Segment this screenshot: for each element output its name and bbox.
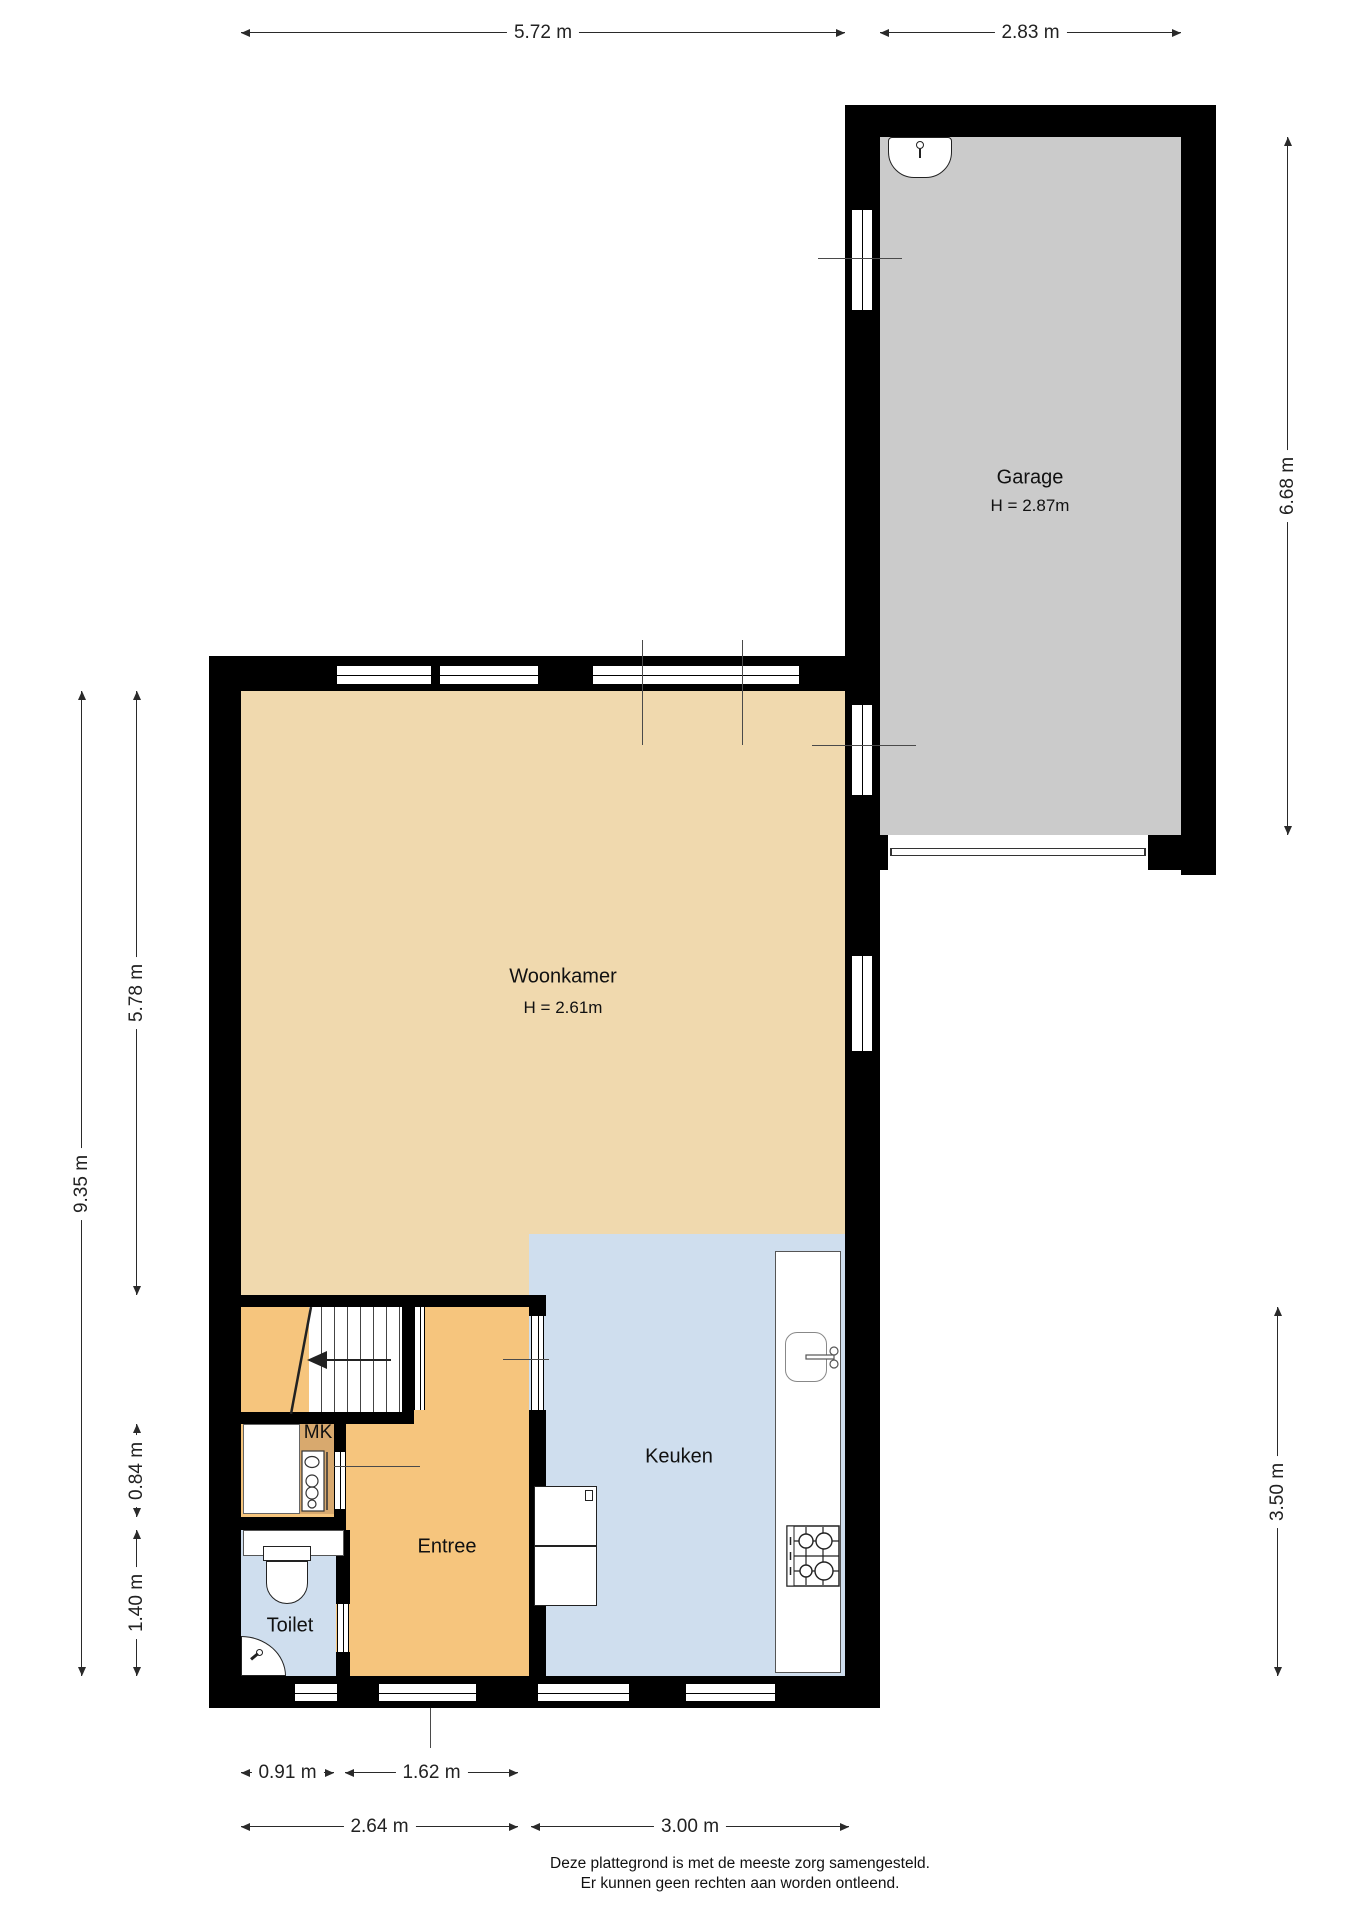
house-left-wall [209, 656, 241, 1708]
reference-line [812, 745, 916, 746]
room-label-toilet: Toilet [267, 1615, 314, 1638]
keuken-wall-top-stub [529, 1307, 546, 1316]
ceiling-height-woonkamer: H = 2.61m [524, 998, 603, 1018]
dim-right-keuken: 3.50 m [1277, 1307, 1278, 1676]
toilet-window [295, 1683, 337, 1702]
dim-left-house: 9.35 m [81, 691, 82, 1676]
stairs-direction-arrow-icon [283, 1303, 408, 1418]
keuken-bottom-window [686, 1683, 775, 1702]
room-label-entree: Entree [418, 1536, 477, 1559]
reference-line [742, 640, 743, 745]
garage-bottom-wall-right [1148, 835, 1216, 870]
closet [243, 1424, 300, 1514]
front-door [379, 1683, 476, 1702]
woonkamer-top-window-right [593, 665, 799, 685]
ceiling-height-garage: H = 2.87m [991, 496, 1070, 516]
garage-door [888, 835, 1148, 870]
disclaimer-line2: Er kunnen geen rechten aan worden ontlee… [550, 1874, 930, 1894]
reference-line [642, 640, 643, 745]
toilet-top-wall [241, 1517, 346, 1530]
garage-window [851, 210, 873, 310]
house-right-wall [845, 105, 880, 1708]
dim-bottom-entree: 1.62 m [345, 1772, 518, 1773]
toilet-door [337, 1604, 349, 1652]
woonkamer-garage-window [851, 705, 873, 795]
toilet-side-wall-lower [336, 1652, 350, 1676]
woonkamer-floor [241, 691, 845, 1295]
reference-line [818, 258, 902, 259]
garage-top-wall [845, 105, 1216, 137]
room-label-keuken: Keuken [645, 1446, 713, 1469]
dim-bottom-toilet: 0.91 m [241, 1772, 334, 1773]
dim-top-garage: 2.83 m [880, 32, 1181, 33]
reference-line [430, 1708, 431, 1748]
mk-door [334, 1452, 346, 1509]
meter-cabinet-icon [300, 1450, 334, 1512]
garage-right-wall [1181, 105, 1216, 875]
reference-line [334, 1466, 420, 1467]
room-label-garage: Garage [997, 467, 1064, 490]
reference-line [503, 1359, 549, 1360]
dim-left-woonkamer: 5.78 m [136, 691, 137, 1295]
disclaimer-line1: Deze plattegrond is met de meeste zorg s… [550, 1854, 930, 1874]
garage-sink-icon [888, 137, 952, 178]
mk-wall-top [334, 1424, 346, 1452]
disclaimer: Deze plattegrond is met de meeste zorg s… [550, 1854, 930, 1894]
dim-bottom-house-right: 3.00 m [531, 1826, 849, 1827]
entree-bottom-window [538, 1683, 629, 1702]
kitchen-counter [775, 1251, 841, 1673]
stove-icon [786, 1525, 840, 1587]
dim-right-garage: 6.68 m [1287, 137, 1288, 835]
woonkamer-side-window [851, 956, 873, 1051]
floor-plan: Garage H = 2.87m Woonkamer H = 2.61m Keu… [0, 0, 1358, 1920]
kitchen-island [534, 1486, 597, 1606]
toilet-icon [263, 1546, 311, 1561]
dim-left-meterkast: 0.84 m [136, 1424, 137, 1517]
stair-opening [414, 1307, 425, 1410]
keuken-door [531, 1316, 544, 1410]
toilet-bowl-icon [266, 1561, 308, 1604]
kitchen-faucet-icon [804, 1345, 840, 1371]
dim-top-house: 5.72 m [241, 32, 845, 33]
dim-left-toilet: 1.40 m [136, 1530, 137, 1676]
dim-bottom-house-left: 2.64 m [241, 1826, 518, 1827]
room-label-woonkamer: Woonkamer [509, 966, 616, 989]
window-divider [431, 664, 440, 684]
room-label-meterkast: MK [304, 1422, 333, 1444]
